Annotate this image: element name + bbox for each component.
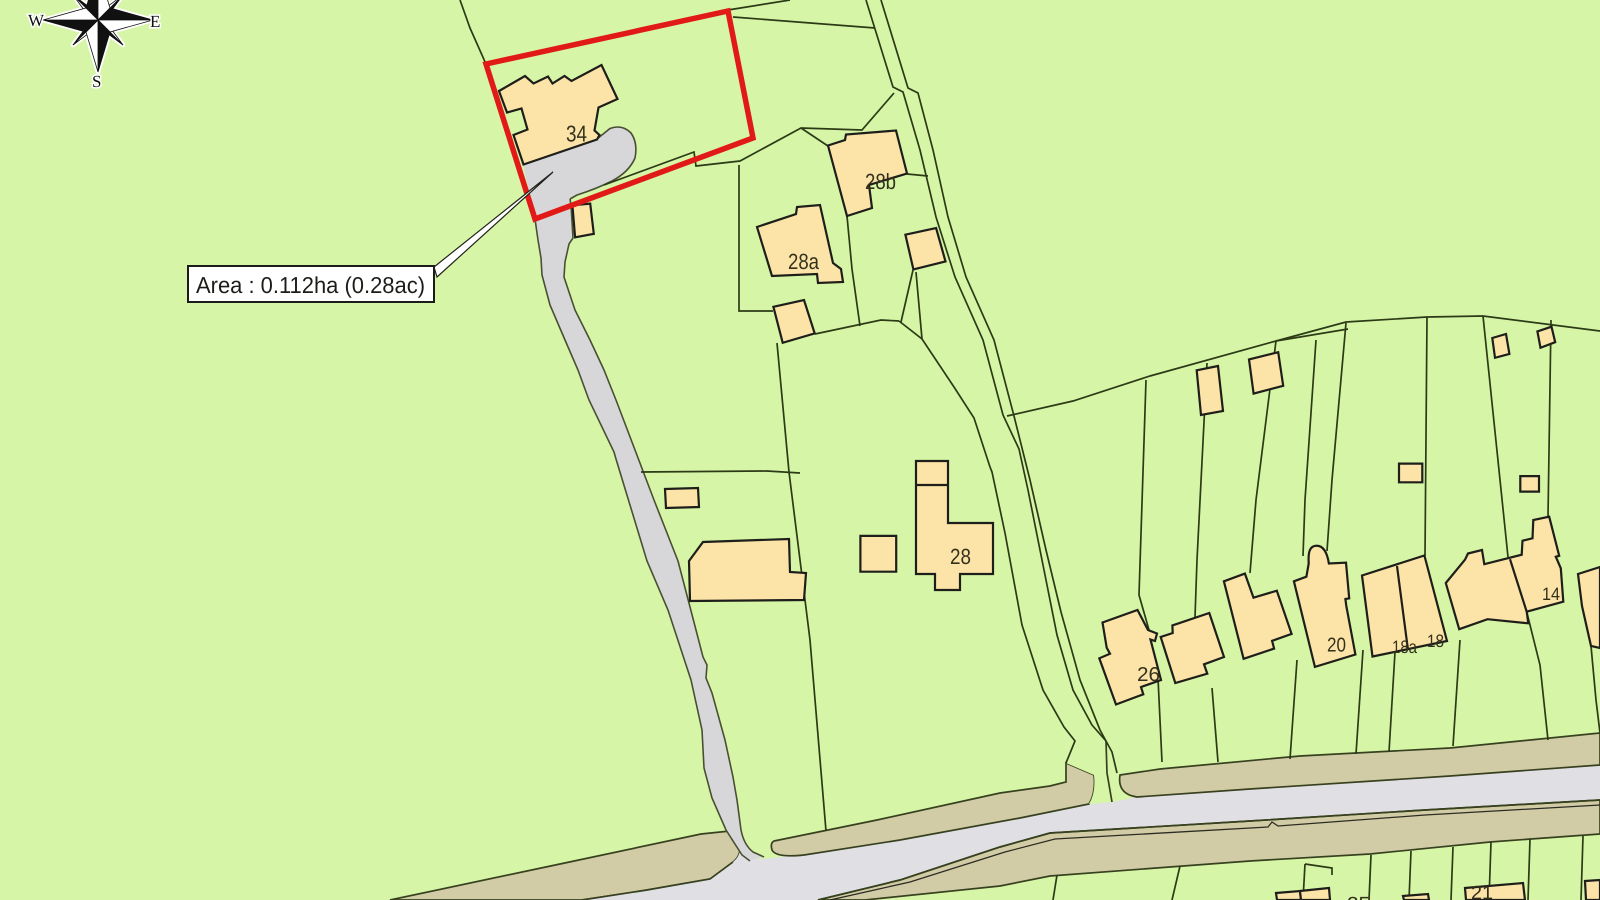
svg-text:14: 14 <box>1542 584 1560 604</box>
svg-text:34: 34 <box>566 121 587 147</box>
svg-text:21: 21 <box>1471 883 1493 900</box>
svg-text:18: 18 <box>1427 631 1444 651</box>
svg-text:S: S <box>92 72 101 91</box>
svg-text:E: E <box>150 12 160 31</box>
svg-text:20: 20 <box>1327 635 1346 657</box>
svg-text:28: 28 <box>950 544 971 569</box>
svg-text:18a: 18a <box>1392 637 1418 657</box>
svg-text:25: 25 <box>1347 894 1370 900</box>
svg-text:W: W <box>28 11 45 30</box>
svg-text:26: 26 <box>1137 664 1160 686</box>
svg-text:28a: 28a <box>788 249 820 274</box>
svg-text:28b: 28b <box>865 169 896 194</box>
svg-text:Area : 0.112ha (0.28ac): Area : 0.112ha (0.28ac) <box>196 272 425 298</box>
